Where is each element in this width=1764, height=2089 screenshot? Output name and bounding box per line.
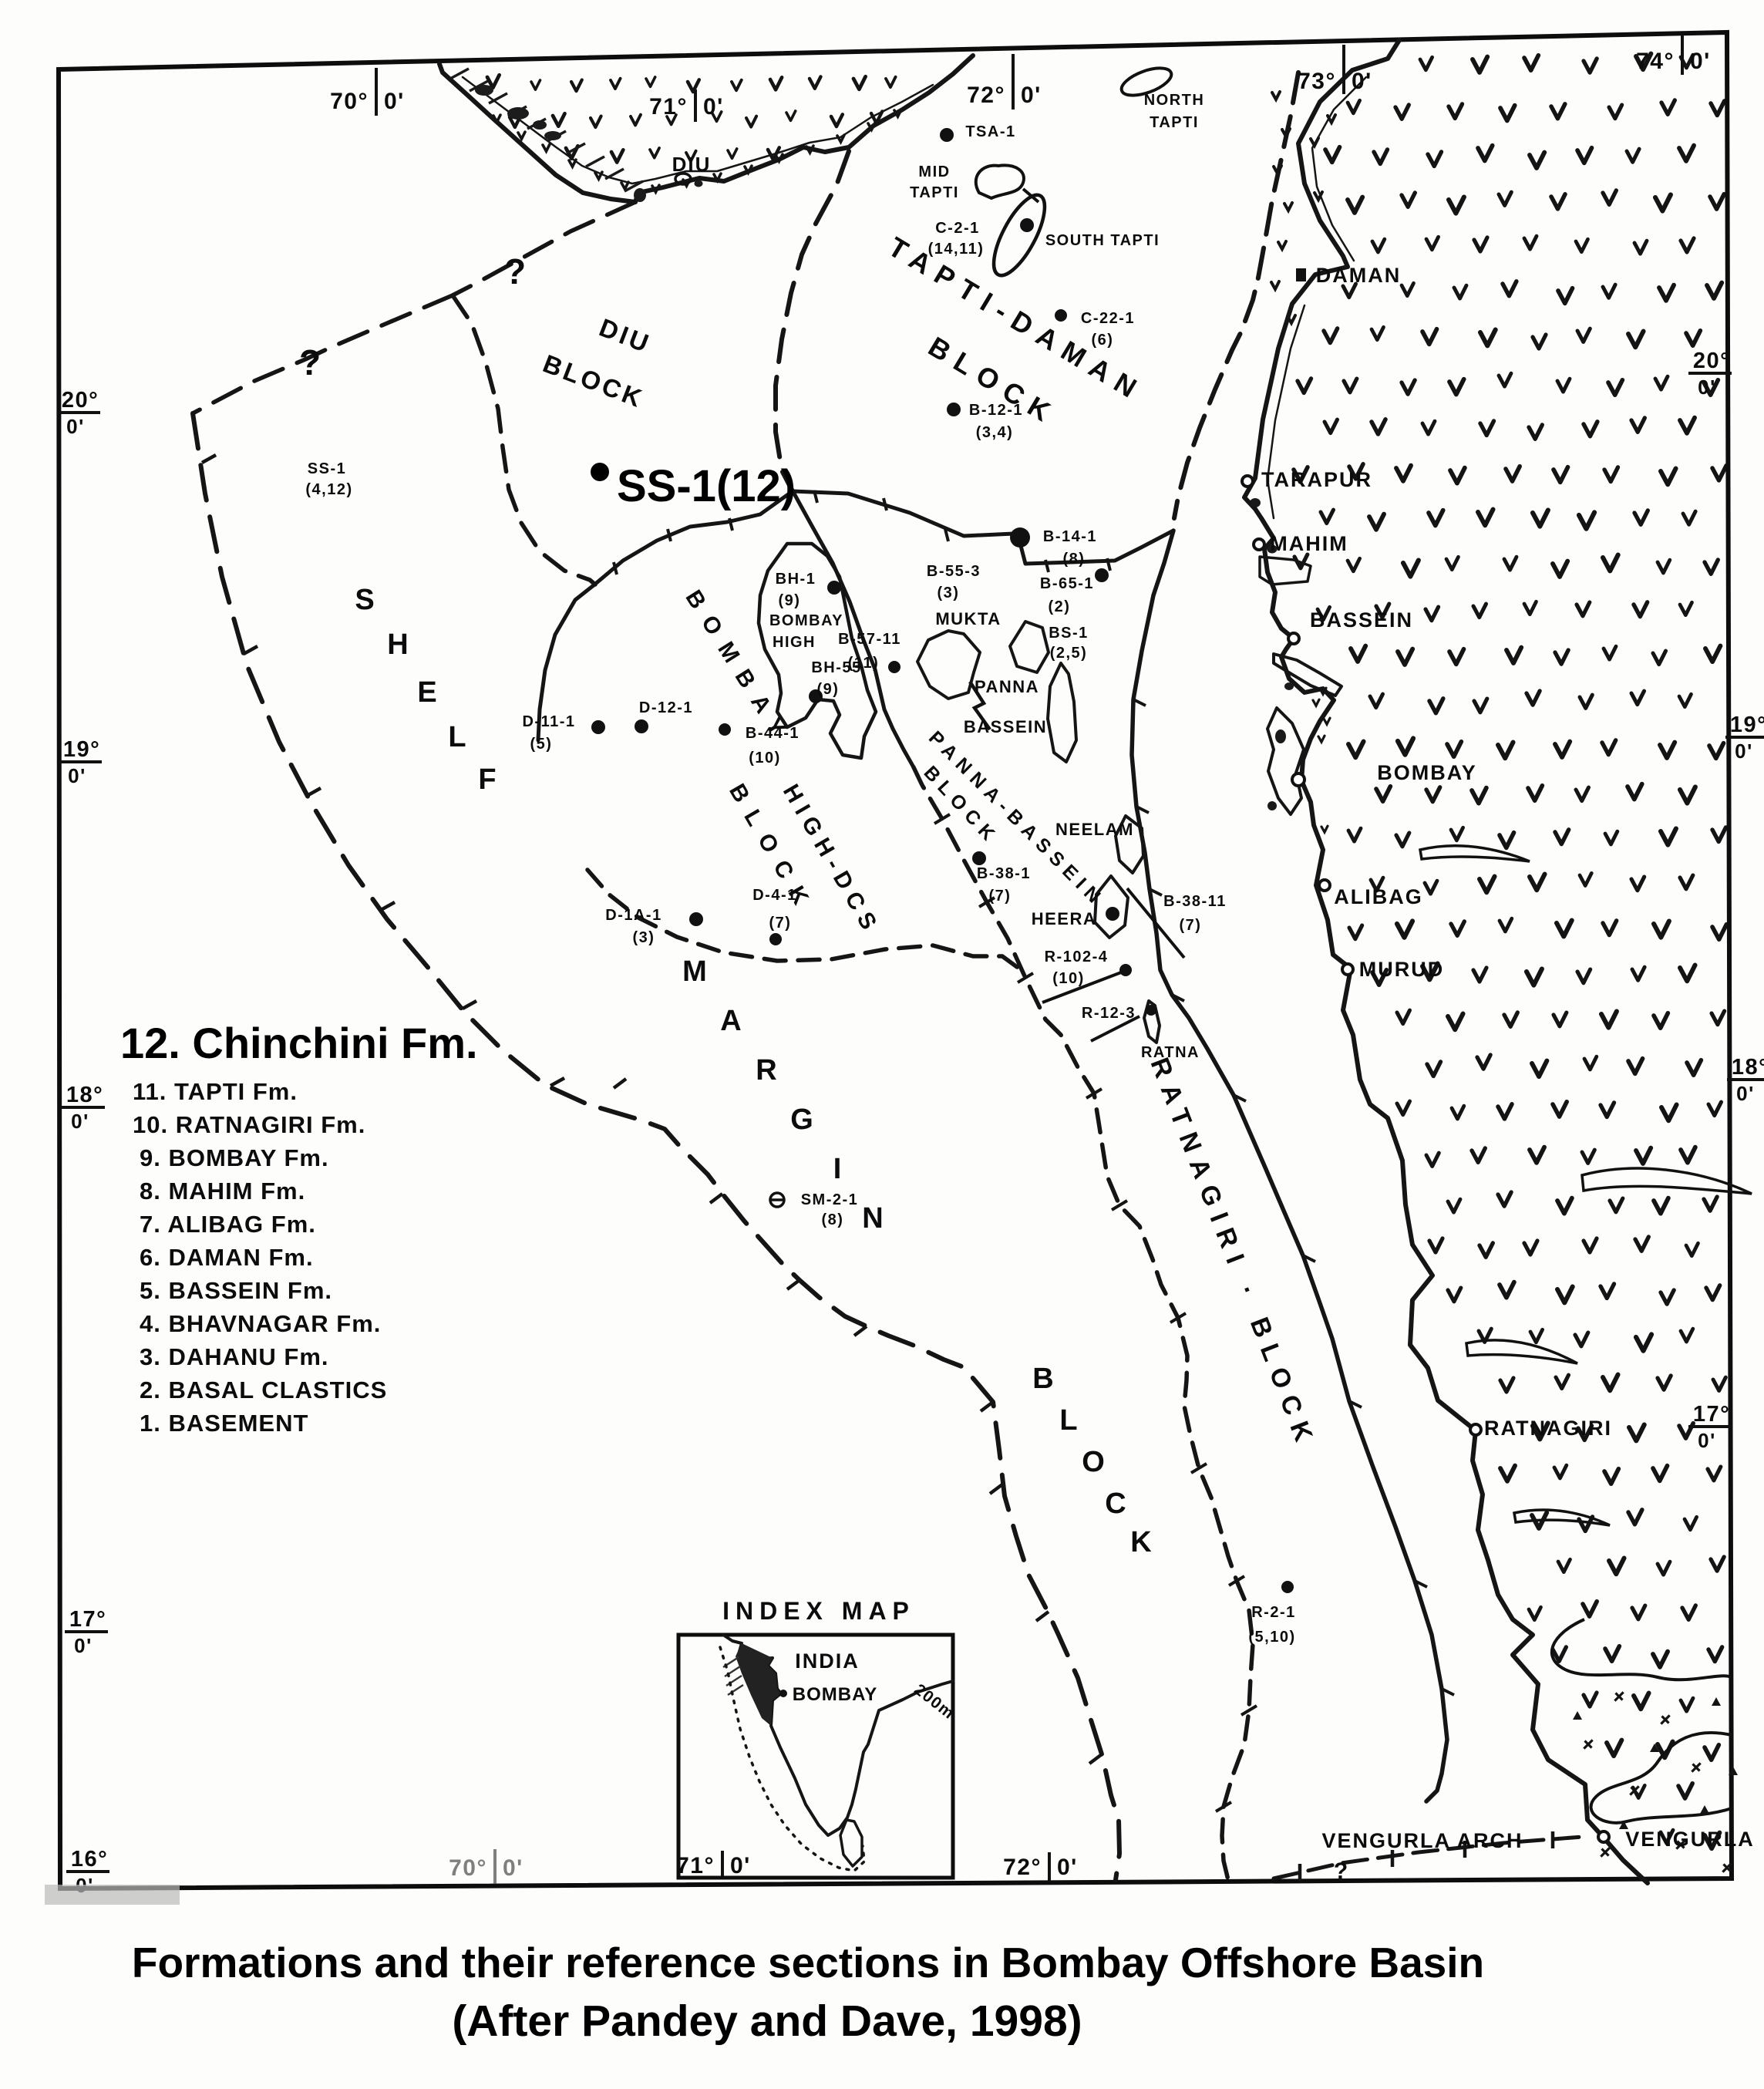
svg-text:72°: 72° xyxy=(967,83,1005,108)
svg-text:(10): (10) xyxy=(749,750,781,767)
svg-text:PANNA: PANNA xyxy=(975,677,1039,696)
svg-text:H: H xyxy=(387,628,408,661)
svg-text:TARAPUR: TARAPUR xyxy=(1261,468,1372,491)
svg-text:NORTH: NORTH xyxy=(1144,92,1205,109)
svg-text:TSA-1: TSA-1 xyxy=(965,123,1015,140)
svg-text:N: N xyxy=(862,1202,883,1235)
svg-text:O: O xyxy=(1082,1446,1105,1478)
svg-text:ALIBAG: ALIBAG xyxy=(1334,885,1423,908)
svg-text:(2,5): (2,5) xyxy=(1050,645,1088,662)
svg-text:C-2-1: C-2-1 xyxy=(935,220,980,237)
svg-text:0': 0' xyxy=(1057,1855,1078,1880)
svg-text:11. TAPTI Fm.: 11. TAPTI Fm. xyxy=(133,1078,298,1105)
svg-text:B-14-1: B-14-1 xyxy=(1043,528,1097,545)
svg-text:1. BASEMENT: 1. BASEMENT xyxy=(140,1410,308,1437)
svg-text:BASSEIN: BASSEIN xyxy=(1310,608,1413,632)
svg-text:18°: 18° xyxy=(66,1083,103,1107)
svg-text:DIU: DIU xyxy=(672,153,712,176)
svg-text:?: ? xyxy=(299,342,321,382)
svg-text:(7): (7) xyxy=(1180,917,1202,934)
svg-text:10. RATNAGIRI Fm.: 10. RATNAGIRI Fm. xyxy=(133,1111,365,1138)
svg-text:0': 0' xyxy=(71,1110,89,1133)
svg-text:B-12-1: B-12-1 xyxy=(969,402,1023,419)
svg-text:0': 0' xyxy=(384,89,405,114)
svg-text:0': 0' xyxy=(1698,376,1716,399)
svg-text:MAHIM: MAHIM xyxy=(1270,532,1348,555)
svg-text:B-38-1: B-38-1 xyxy=(977,865,1031,882)
svg-text:I: I xyxy=(833,1153,842,1185)
svg-text:B: B xyxy=(1032,1363,1053,1395)
svg-text:?: ? xyxy=(1334,1858,1348,1884)
svg-text:4. BHAVNAGAR Fm.: 4. BHAVNAGAR Fm. xyxy=(140,1310,381,1337)
svg-text:MURUD: MURUD xyxy=(1359,958,1445,981)
svg-text:70°: 70° xyxy=(330,89,369,114)
svg-text:(3): (3) xyxy=(633,929,655,946)
svg-text:BOMBAY: BOMBAY xyxy=(769,612,843,629)
svg-text:19°: 19° xyxy=(63,737,100,762)
svg-text:B-44-1: B-44-1 xyxy=(746,725,800,742)
svg-text:B-57-11: B-57-11 xyxy=(838,631,901,648)
svg-text:TAPTI: TAPTI xyxy=(1150,114,1199,131)
svg-text:D-12-1: D-12-1 xyxy=(639,699,693,716)
svg-text:BOMBAY: BOMBAY xyxy=(1377,761,1477,784)
svg-text:L: L xyxy=(448,721,466,753)
svg-text:70°: 70° xyxy=(449,1855,487,1881)
svg-text:A: A xyxy=(720,1005,741,1037)
svg-text:18°: 18° xyxy=(1732,1055,1764,1080)
svg-text:D-11-1: D-11-1 xyxy=(522,713,575,730)
svg-text:D-4-1: D-4-1 xyxy=(752,887,797,904)
svg-text:BASSEIN: BASSEIN xyxy=(964,717,1047,736)
svg-text:?: ? xyxy=(504,251,526,291)
svg-text:9. BOMBAY Fm.: 9. BOMBAY Fm. xyxy=(140,1144,329,1171)
svg-text:F: F xyxy=(478,763,496,796)
svg-text:L: L xyxy=(1059,1404,1077,1437)
svg-text:74°: 74° xyxy=(1636,49,1675,74)
svg-text:3. DAHANU Fm.: 3. DAHANU Fm. xyxy=(140,1343,329,1370)
svg-text:DAMAN: DAMAN xyxy=(1316,264,1402,287)
svg-text:0': 0' xyxy=(503,1855,523,1881)
svg-text:R-102-4: R-102-4 xyxy=(1045,948,1109,965)
svg-text:D-1A-1: D-1A-1 xyxy=(605,907,661,924)
svg-text:G: G xyxy=(790,1103,813,1136)
svg-text:(5): (5) xyxy=(530,736,553,753)
svg-text:20°: 20° xyxy=(62,388,99,413)
svg-text:RATNA: RATNA xyxy=(1141,1044,1200,1061)
svg-text:BS-1: BS-1 xyxy=(1049,625,1089,642)
svg-text:0': 0' xyxy=(66,415,85,438)
svg-text:C-22-1: C-22-1 xyxy=(1081,310,1135,327)
svg-text:2. BASAL CLASTICS: 2. BASAL CLASTICS xyxy=(140,1376,387,1403)
svg-text:(8): (8) xyxy=(1063,551,1086,568)
svg-text:INDIA: INDIA xyxy=(795,1649,860,1673)
svg-text:S: S xyxy=(355,584,374,616)
svg-text:B-55-3: B-55-3 xyxy=(927,563,981,580)
svg-text:HEERA: HEERA xyxy=(1032,909,1097,928)
svg-text:17°: 17° xyxy=(1693,1402,1730,1427)
svg-text:BH-1: BH-1 xyxy=(776,571,816,588)
svg-text:(5,10): (5,10) xyxy=(1248,1629,1295,1646)
svg-text:VENGURLA: VENGURLA xyxy=(1625,1828,1755,1851)
svg-text:0': 0' xyxy=(730,1853,751,1878)
svg-text:B-65-1: B-65-1 xyxy=(1040,575,1094,592)
svg-text:19°: 19° xyxy=(1730,713,1764,737)
svg-text:0': 0' xyxy=(703,94,724,120)
svg-text:NEELAM: NEELAM xyxy=(1055,820,1134,839)
svg-text:17°: 17° xyxy=(69,1607,106,1632)
svg-text:BH-55: BH-55 xyxy=(811,659,861,676)
svg-text:MID: MID xyxy=(918,163,950,180)
svg-text:0': 0' xyxy=(68,764,86,787)
svg-text:7. ALIBAG Fm.: 7. ALIBAG Fm. xyxy=(140,1211,316,1238)
svg-text:0': 0' xyxy=(1690,49,1711,74)
svg-text:(After Pandey and Dave, 1998): (After Pandey and Dave, 1998) xyxy=(452,1996,1082,2046)
svg-text:(9): (9) xyxy=(779,592,801,609)
svg-text:R-12-3: R-12-3 xyxy=(1082,1005,1136,1022)
svg-text:(4,12): (4,12) xyxy=(305,481,352,498)
svg-text:(14,11): (14,11) xyxy=(928,241,985,258)
svg-text:HIGH: HIGH xyxy=(773,634,816,651)
svg-text:(7): (7) xyxy=(989,888,1012,905)
svg-text:0': 0' xyxy=(1735,740,1753,763)
svg-text:73°: 73° xyxy=(1298,69,1336,94)
svg-text:6. DAMAN Fm.: 6. DAMAN Fm. xyxy=(140,1244,314,1271)
svg-text:0': 0' xyxy=(1021,83,1042,108)
svg-text:VENGURLA ARCH: VENGURLA ARCH xyxy=(1322,1829,1523,1852)
svg-text:20°: 20° xyxy=(1693,349,1730,373)
svg-text:71°: 71° xyxy=(676,1853,715,1878)
svg-text:0': 0' xyxy=(1698,1429,1716,1452)
svg-text:RATNAGIRI: RATNAGIRI xyxy=(1484,1417,1612,1440)
svg-text:(3): (3) xyxy=(938,585,960,601)
svg-text:K: K xyxy=(1130,1526,1152,1558)
svg-text:(8): (8) xyxy=(822,1211,844,1228)
svg-text:R: R xyxy=(756,1054,776,1087)
svg-text:8. MAHIM Fm.: 8. MAHIM Fm. xyxy=(140,1178,305,1205)
svg-text:R-2-1: R-2-1 xyxy=(1251,1604,1296,1621)
svg-text:E: E xyxy=(417,676,436,709)
svg-text:0': 0' xyxy=(1352,69,1372,94)
svg-text:16°: 16° xyxy=(71,1847,108,1872)
svg-text:12. Chinchini Fm.: 12. Chinchini Fm. xyxy=(120,1019,478,1067)
svg-text:0': 0' xyxy=(74,1634,93,1657)
svg-text:B-38-11: B-38-11 xyxy=(1163,893,1227,910)
svg-text:INDEX MAP: INDEX MAP xyxy=(722,1597,915,1625)
svg-text:72°: 72° xyxy=(1003,1855,1042,1880)
svg-text:(9): (9) xyxy=(817,681,840,698)
svg-text:BOMBAY: BOMBAY xyxy=(793,1684,877,1705)
svg-text:71°: 71° xyxy=(649,94,688,120)
svg-text:C: C xyxy=(1105,1488,1126,1520)
svg-text:(2): (2) xyxy=(1049,598,1071,615)
svg-text:0': 0' xyxy=(1736,1082,1755,1105)
svg-text:TAPTI: TAPTI xyxy=(910,184,959,201)
svg-text:SS-1(12): SS-1(12) xyxy=(617,461,796,511)
svg-text:(7): (7) xyxy=(769,915,792,932)
svg-text:SOUTH TAPTI: SOUTH TAPTI xyxy=(1045,232,1160,249)
svg-text:5. BASSEIN Fm.: 5. BASSEIN Fm. xyxy=(140,1277,332,1304)
svg-text:MUKTA: MUKTA xyxy=(935,609,1001,628)
svg-text:(3,4): (3,4) xyxy=(976,424,1014,441)
svg-text:SS-1: SS-1 xyxy=(308,460,346,477)
svg-text:SM-2-1: SM-2-1 xyxy=(801,1191,859,1208)
svg-text:(6): (6) xyxy=(1092,332,1114,349)
svg-text:(10): (10) xyxy=(1052,970,1085,987)
svg-text:M: M xyxy=(682,955,707,988)
svg-text:Formations and their reference: Formations and their reference sections … xyxy=(132,1939,1484,1986)
